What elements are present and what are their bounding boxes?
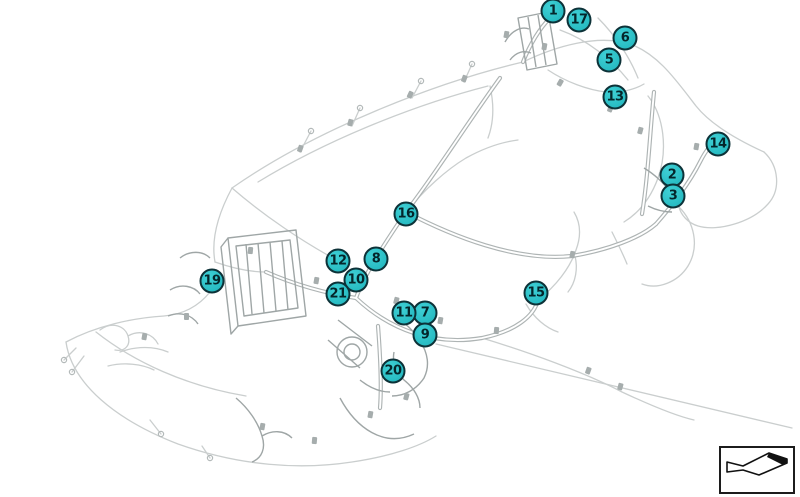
harness-line-art [0, 0, 800, 473]
harness-thin-lines [64, 18, 792, 466]
callout-5[interactable]: 5 [597, 48, 622, 73]
harness-clusters [168, 12, 672, 462]
callout-12[interactable]: 12 [326, 249, 351, 274]
callout-17[interactable]: 17 [567, 8, 592, 33]
callout-13[interactable]: 13 [603, 85, 628, 110]
direction-indicator-box [719, 446, 795, 494]
callout-19[interactable]: 19 [200, 269, 225, 294]
callout-15[interactable]: 15 [524, 281, 549, 306]
callout-16[interactable]: 16 [394, 202, 419, 227]
callout-3[interactable]: 3 [661, 184, 686, 209]
callout-11[interactable]: 11 [392, 301, 417, 326]
direction-arrow-icon [721, 448, 793, 492]
callout-9[interactable]: 9 [413, 323, 438, 348]
callout-21[interactable]: 21 [326, 282, 351, 307]
callout-6[interactable]: 6 [613, 26, 638, 51]
diagram-canvas: 123567891011121314151617192021 [0, 0, 800, 473]
callout-20[interactable]: 20 [381, 359, 406, 384]
callout-14[interactable]: 14 [706, 132, 731, 157]
callout-8[interactable]: 8 [364, 247, 389, 272]
harness-trunk-lines [266, 18, 720, 408]
